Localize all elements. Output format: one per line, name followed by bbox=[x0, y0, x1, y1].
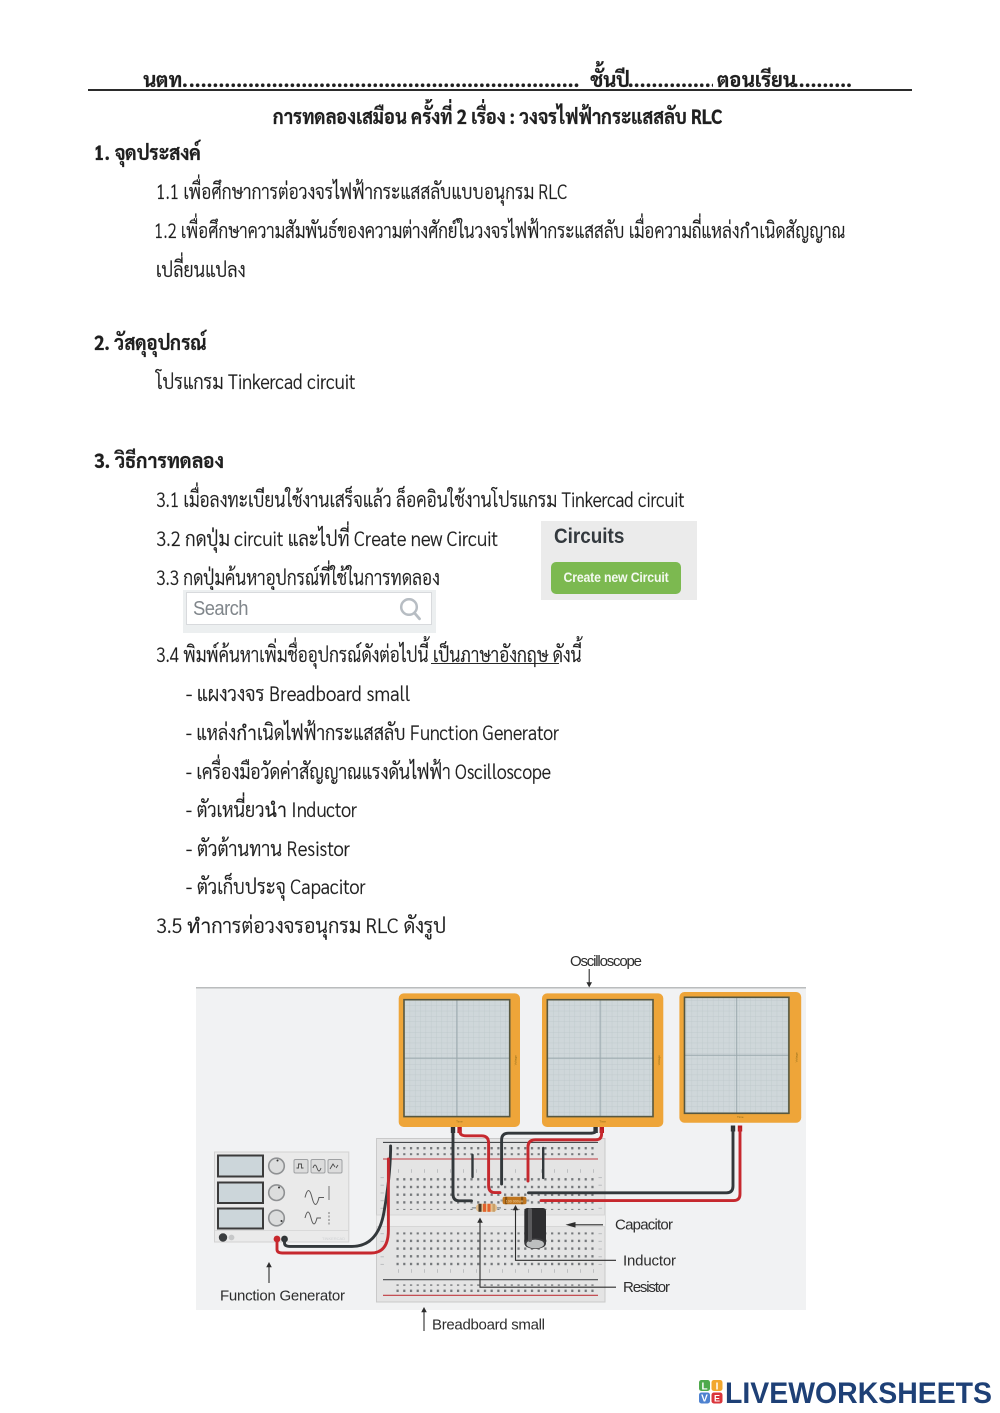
svg-text:100 000uH: 100 000uH bbox=[506, 1199, 524, 1203]
svg-text:Time: Time bbox=[599, 1120, 606, 1124]
svg-text:Voltage: Voltage bbox=[514, 1055, 518, 1065]
svg-text:Time: Time bbox=[456, 1120, 463, 1124]
svg-text:Breadboard small: Breadboard small bbox=[432, 1317, 545, 1334]
svg-text:Resistor: Resistor bbox=[623, 1279, 670, 1296]
svg-text:Oscilloscope: Oscilloscope bbox=[570, 953, 642, 970]
svg-text:L: L bbox=[701, 1382, 707, 1393]
svg-text:Function Generator: Function Generator bbox=[220, 1288, 345, 1305]
svg-text:TINKERCAD: TINKERCAD bbox=[322, 1236, 345, 1241]
svg-text:Voltage: Voltage bbox=[657, 1055, 661, 1065]
svg-text:V: V bbox=[701, 1394, 708, 1405]
svg-text:Time: Time bbox=[737, 1115, 744, 1119]
svg-text:I: I bbox=[716, 1382, 719, 1393]
svg-text:LIVEWORKSHEETS: LIVEWORKSHEETS bbox=[725, 1377, 992, 1410]
svg-text:Voltage: Voltage bbox=[795, 1052, 799, 1062]
svg-text:Inductor: Inductor bbox=[623, 1253, 676, 1270]
svg-text:E: E bbox=[714, 1394, 720, 1404]
svg-text:Capacitor: Capacitor bbox=[615, 1217, 673, 1234]
